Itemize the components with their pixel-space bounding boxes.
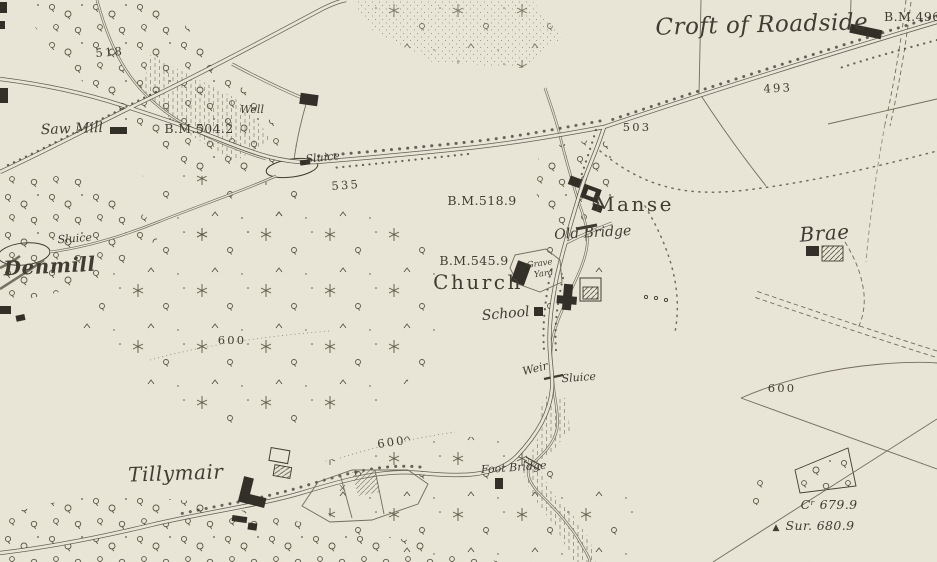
label-spot-height-503: 503 [623, 120, 652, 134]
label-spot-height-518: 518 [95, 44, 124, 60]
map-canvas[interactable]: Croft of Roadside B.M.496 493 503 518 53… [0, 0, 937, 562]
school-house [534, 307, 543, 316]
label-contour-600-east: 600 [768, 381, 797, 395]
building [0, 2, 7, 13]
building [495, 478, 503, 489]
label-bm-504-2: B.M.504.2 [164, 121, 233, 136]
building-hatched [583, 287, 598, 299]
label-bm-545-9: B.M.545.9 [439, 253, 508, 268]
label-sur-680-9: Sur. 680.9 [786, 518, 855, 533]
building-hatched [273, 465, 292, 479]
label-denmill: Denmill [2, 252, 96, 281]
building [247, 522, 257, 530]
building [0, 88, 8, 103]
building [0, 306, 11, 314]
label-manse: Manse [594, 192, 674, 216]
label-sluice-weir: Sluice [561, 370, 597, 385]
building-outline [269, 448, 290, 464]
brae-building-hatched [822, 246, 843, 261]
label-croft-of-roadside: Croft of Roadside [655, 9, 868, 41]
label-well: Well [240, 103, 264, 116]
label-saw-mill: Saw Mill [41, 120, 104, 138]
label-spot-height-535: 535 [331, 177, 360, 193]
label-spot-height-493: 493 [763, 80, 792, 95]
label-bm-496: B.M.496 [884, 9, 937, 24]
label-sluice-denmill: Sluice [57, 231, 93, 246]
building [0, 21, 5, 29]
map-viewport[interactable]: Croft of Roadside B.M.496 493 503 518 53… [0, 0, 937, 562]
label-church: Church [433, 270, 523, 294]
label-cr-679-9: Cʳ 679.9 [801, 497, 858, 512]
label-brae: Brae [798, 219, 851, 247]
label-bm-518-9: B.M.518.9 [447, 193, 516, 208]
label-tillymair: Tillymair [128, 459, 225, 486]
saw-mill-building [110, 127, 127, 134]
brae-building [806, 246, 819, 256]
label-contour-600-west: 600 [218, 333, 247, 347]
survey-triangle-icon: ▲ [773, 523, 780, 533]
